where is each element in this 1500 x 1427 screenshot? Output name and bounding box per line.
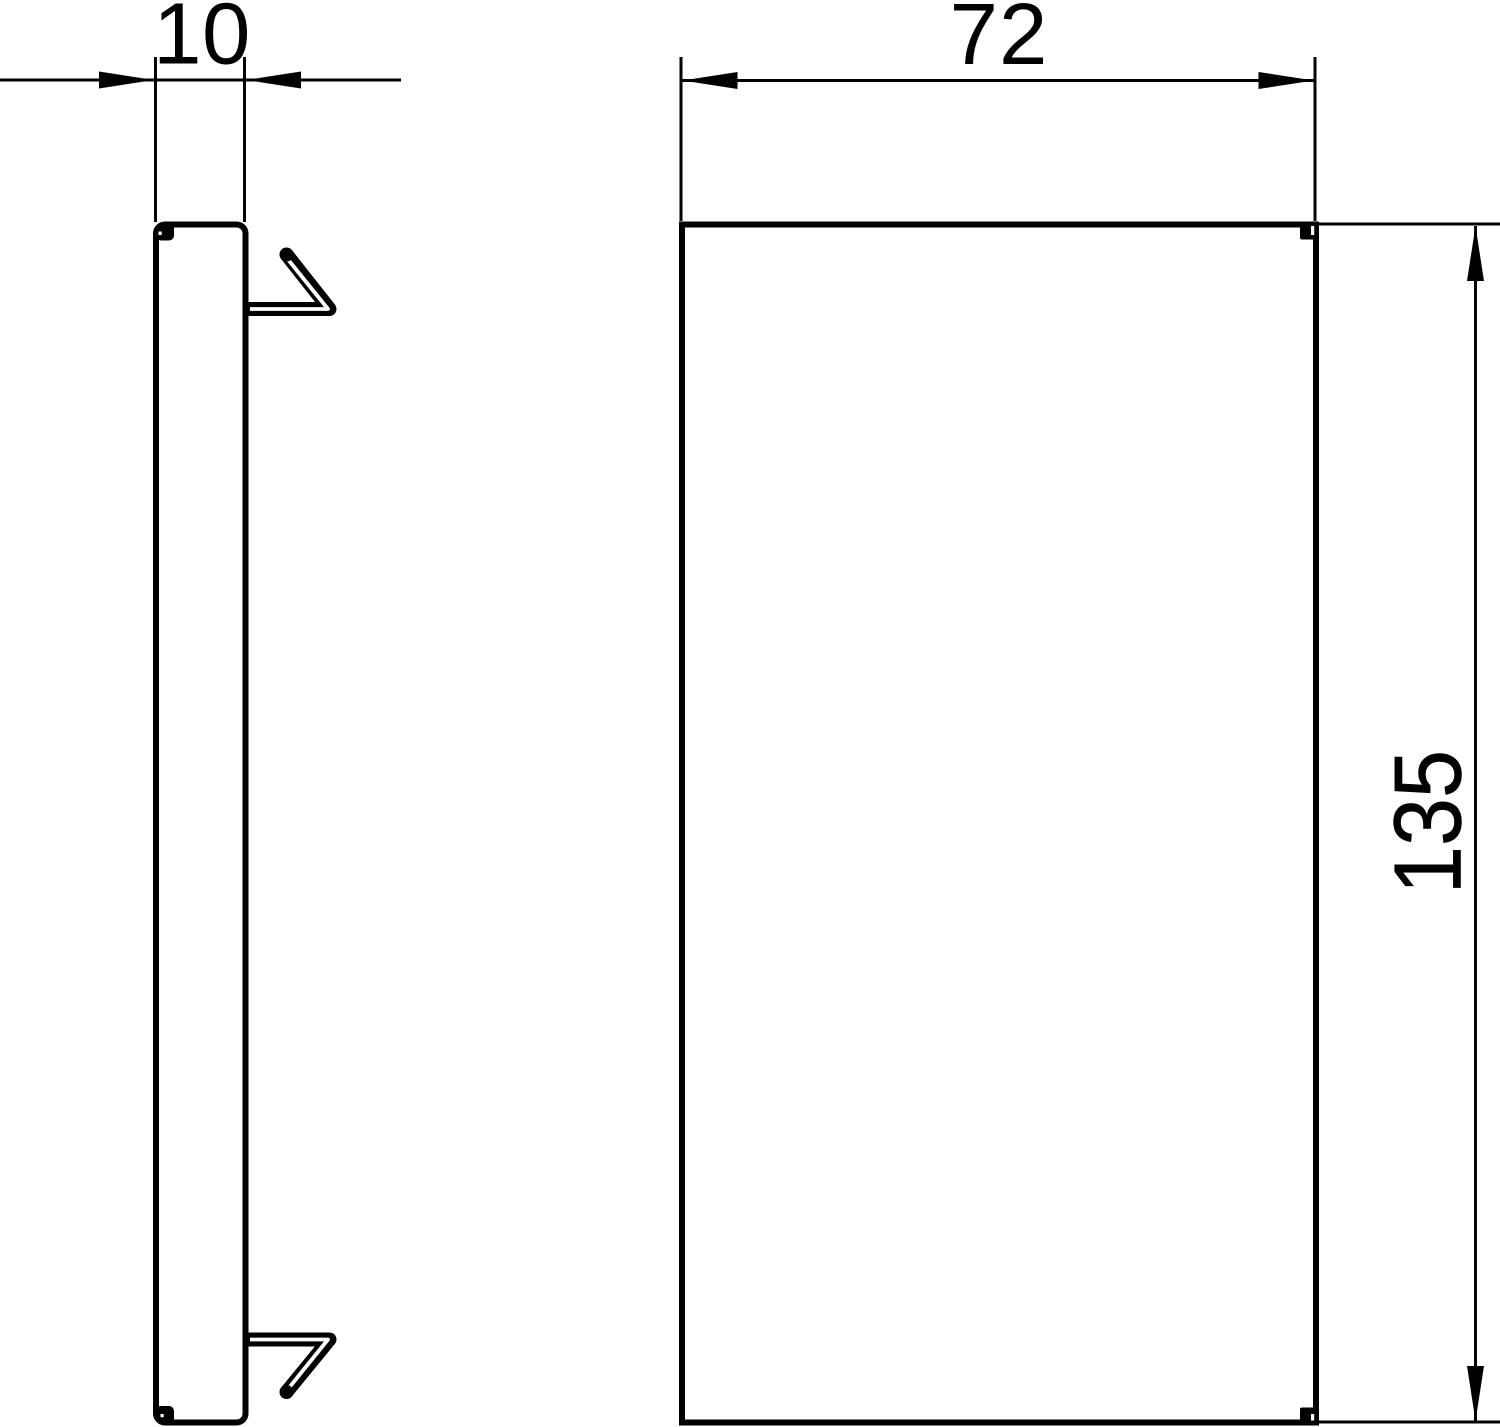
svg-text:10: 10 [153,0,251,83]
svg-text:135: 135 [1374,750,1481,894]
svg-text:72: 72 [950,0,1049,83]
